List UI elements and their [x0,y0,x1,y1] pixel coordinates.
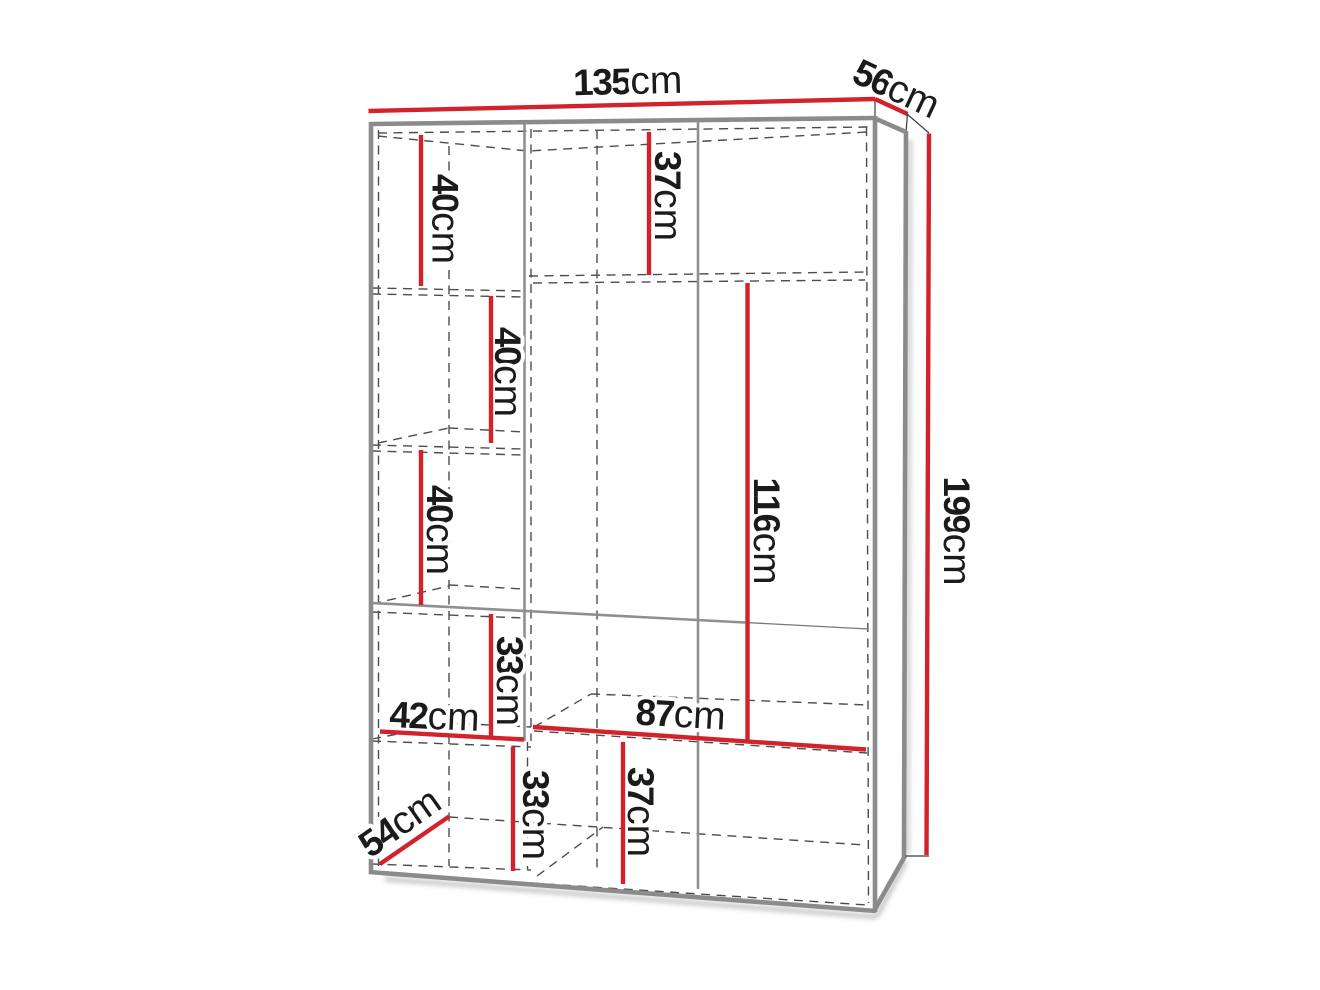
svg-text:135cm: 135cm [573,59,683,104]
svg-text:116cm: 116cm [745,477,788,584]
svg-text:40cm: 40cm [424,174,467,264]
svg-text:37cm: 37cm [646,151,689,241]
svg-text:199cm: 199cm [935,476,978,585]
svg-text:87cm: 87cm [634,691,726,739]
svg-text:33cm: 33cm [488,636,531,726]
svg-text:33cm: 33cm [514,770,557,860]
svg-text:37cm: 37cm [619,767,662,857]
svg-text:40cm: 40cm [418,485,461,575]
